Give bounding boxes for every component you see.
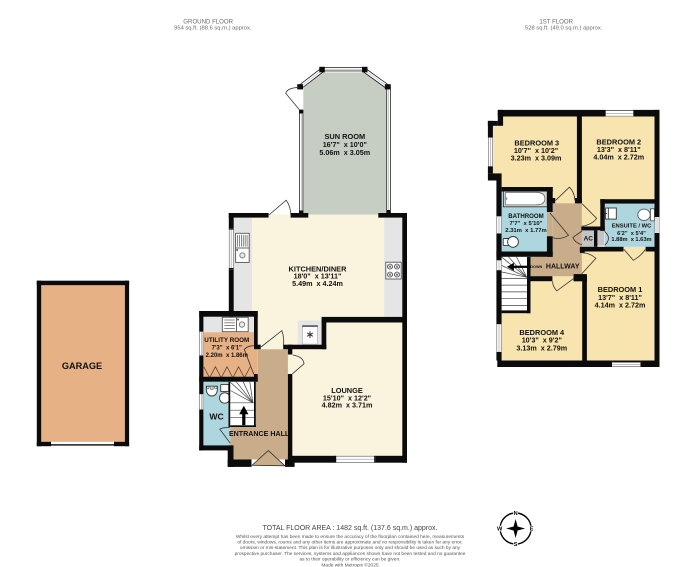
svg-text:TOTAL FLOOR AREA : 1482 sq.ft.: TOTAL FLOOR AREA : 1482 sq.ft. (137.6 sq… xyxy=(263,525,438,532)
svg-text:954 sq.ft. (88.6 sq.m.) approx: 954 sq.ft. (88.6 sq.m.) approx. xyxy=(174,26,252,32)
svg-text:HALLWAY: HALLWAY xyxy=(546,264,580,271)
svg-text:DOWN: DOWN xyxy=(530,265,542,269)
svg-text:AC: AC xyxy=(584,235,594,242)
svg-text:1.88m x 1.63m: 1.88m x 1.63m xyxy=(611,237,651,243)
svg-text:7'3" x 6'1": 7'3" x 6'1" xyxy=(212,346,242,352)
svg-text:ENTRANCE HALL: ENTRANCE HALL xyxy=(229,430,290,438)
svg-text:N: N xyxy=(514,511,518,517)
svg-text:W: W xyxy=(497,526,503,532)
svg-text:6'2" x 5'4": 6'2" x 5'4" xyxy=(617,231,646,237)
svg-text:GARAGE: GARAGE xyxy=(62,361,102,371)
svg-text:2.20m x 1.86m: 2.20m x 1.86m xyxy=(206,353,248,359)
svg-text:S: S xyxy=(514,542,518,548)
svg-text:7'7" x 5'10": 7'7" x 5'10" xyxy=(510,221,543,227)
svg-text:4.82m x 3.71m: 4.82m x 3.71m xyxy=(322,401,373,410)
svg-text:4.04m x 2.72m: 4.04m x 2.72m xyxy=(593,153,644,162)
svg-text:BATHROOM: BATHROOM xyxy=(508,213,543,220)
svg-text:3.13m x 2.79m: 3.13m x 2.79m xyxy=(516,343,567,352)
svg-text:as to their operability or eff: as to their operability or efficiency ca… xyxy=(300,557,401,563)
svg-text:4.14m x 2.72m: 4.14m x 2.72m xyxy=(595,300,646,309)
svg-text:3.23m x 3.09m: 3.23m x 3.09m xyxy=(511,154,562,163)
svg-text:E: E xyxy=(530,527,534,533)
svg-text:5.06m x 3.05m: 5.06m x 3.05m xyxy=(319,148,370,157)
svg-text:ENSUITE / WC: ENSUITE / WC xyxy=(612,224,652,230)
svg-text:of doors, windows, rooms and a: of doors, windows, rooms and any other i… xyxy=(237,540,462,546)
svg-text:1ST FLOOR: 1ST FLOOR xyxy=(539,19,573,26)
svg-text:Whilst every attempt has been: Whilst every attempt has been made to en… xyxy=(236,534,465,540)
svg-text:prospective purchaser. The ser: prospective purchaser. The services, sys… xyxy=(235,551,466,557)
svg-text:omission or mis-statement. Thi: omission or mis-statement. This plan is … xyxy=(240,545,461,551)
svg-text:528 sq.ft. (49.0 sq.m.) approx: 528 sq.ft. (49.0 sq.m.) approx. xyxy=(525,26,603,32)
svg-text:UTILITY ROOM: UTILITY ROOM xyxy=(204,337,249,344)
svg-text:GROUND FLOOR: GROUND FLOOR xyxy=(183,19,233,26)
svg-text:5.49m x 4.24m: 5.49m x 4.24m xyxy=(292,279,343,288)
svg-text:2.31m x 1.77m: 2.31m x 1.77m xyxy=(505,228,547,234)
svg-text:WC: WC xyxy=(209,411,223,421)
